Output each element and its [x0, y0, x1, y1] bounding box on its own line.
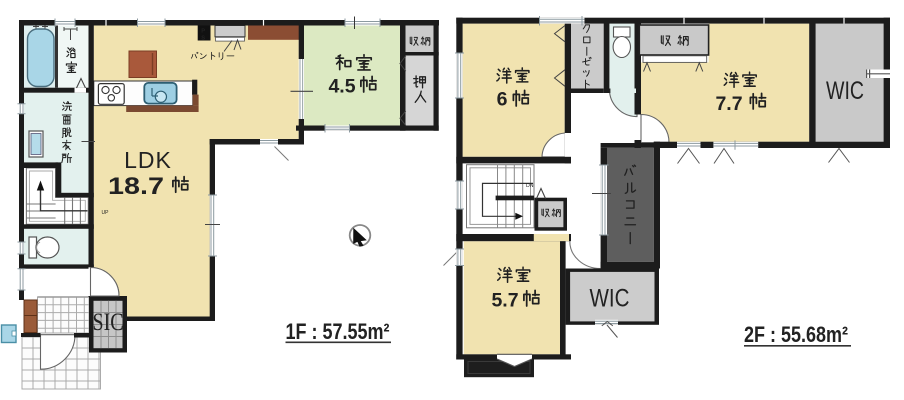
- svg-text:SIC: SIC: [93, 309, 124, 336]
- svg-text:1F : 57.55m²: 1F : 57.55m²: [286, 319, 390, 344]
- svg-text:5.7: 5.7: [491, 290, 518, 312]
- svg-text:P: P: [201, 29, 205, 35]
- svg-text:7.7: 7.7: [715, 93, 742, 115]
- svg-text:WIC: WIC: [826, 77, 864, 105]
- svg-text:4.5: 4.5: [328, 76, 355, 98]
- svg-text:2F : 55.68m²: 2F : 55.68m²: [744, 322, 848, 347]
- svg-text:UP: UP: [102, 210, 110, 216]
- svg-text:18.7: 18.7: [108, 173, 164, 200]
- svg-text:6: 6: [497, 89, 508, 111]
- svg-text:LDK: LDK: [124, 147, 172, 173]
- svg-text:WIC: WIC: [590, 284, 630, 312]
- svg-text:DN: DN: [526, 183, 534, 189]
- svg-text:S: S: [201, 35, 205, 41]
